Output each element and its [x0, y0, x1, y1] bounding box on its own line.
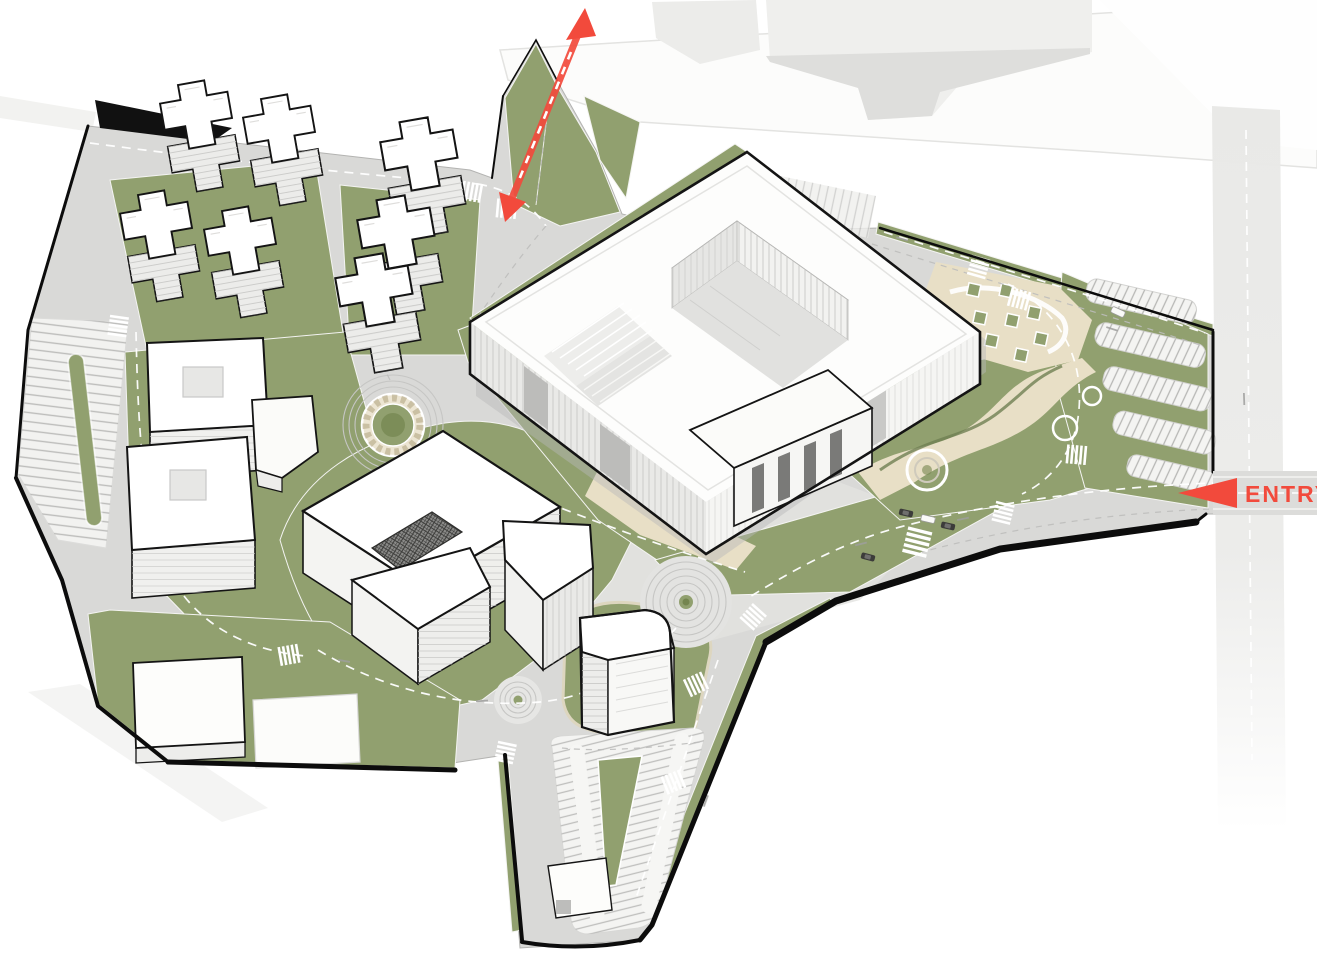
entry-label: ENTRY	[1245, 481, 1317, 507]
flat-pad-southwest	[253, 694, 360, 768]
kiosk-annex	[556, 900, 571, 914]
atrium-void	[183, 367, 223, 397]
south-tower	[580, 610, 674, 735]
site-plan-rendering: ENTRY	[0, 0, 1317, 980]
courtyard-box-building-lower	[127, 437, 255, 598]
masterplan-canvas: ENTRY	[0, 0, 1317, 980]
context-strip-west	[0, 96, 96, 132]
atrium-void	[170, 470, 206, 500]
ring-plaza-small	[494, 676, 542, 724]
